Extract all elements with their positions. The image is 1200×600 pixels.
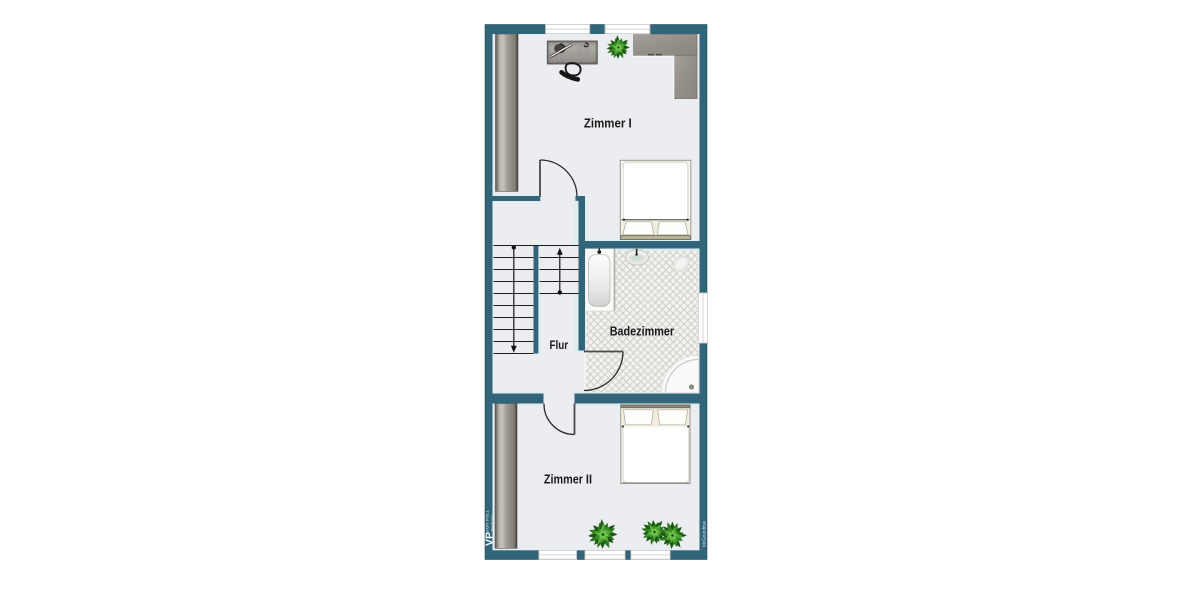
svg-text:Zimmer I: Zimmer I — [584, 116, 632, 131]
svg-text:IMMOBILIEN: IMMOBILIEN — [490, 515, 494, 532]
svg-text:Badezimmer: Badezimmer — [610, 324, 674, 338]
svg-text:Flur: Flur — [550, 340, 569, 352]
svg-text:McGrundriss: McGrundriss — [701, 520, 706, 547]
svg-text:VP: VP — [484, 532, 496, 546]
svg-text:VON POLL: VON POLL — [485, 509, 490, 532]
svg-text:Zimmer II: Zimmer II — [544, 471, 592, 486]
